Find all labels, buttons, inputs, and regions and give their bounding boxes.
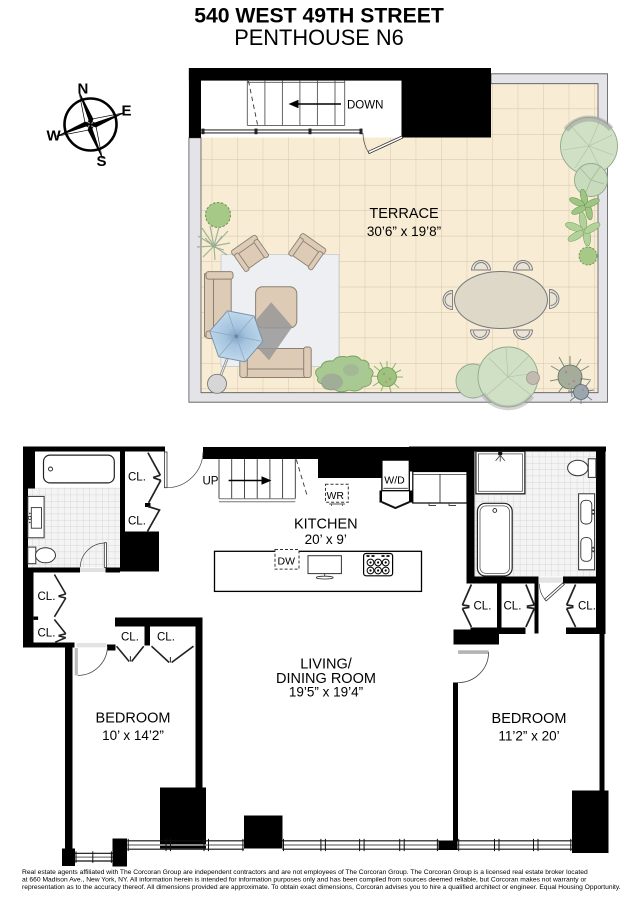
svg-text:CL.: CL. [128,516,146,528]
svg-text:BEDROOM: BEDROOM [96,711,171,727]
svg-text:representation as to the accur: representation as to the accuracy thereo… [22,884,621,891]
svg-text:S: S [97,153,107,170]
svg-text:N: N [78,81,89,98]
svg-text:W/D: W/D [384,475,405,487]
svg-text:at 660 Madison Ave., New York,: at 660 Madison Ave., New York, NY. All i… [22,877,587,884]
svg-text:CL.: CL. [128,472,146,484]
svg-text:CL.: CL. [121,632,139,644]
svg-text:19’5” x 19’4”: 19’5” x 19’4” [289,684,363,699]
svg-text:KITCHEN: KITCHEN [294,517,358,533]
svg-text:CL.: CL. [504,601,522,613]
svg-text:10’ x 14’2”: 10’ x 14’2” [102,728,164,743]
svg-text:PENTHOUSE N6: PENTHOUSE N6 [234,25,404,50]
svg-text:WR: WR [327,490,345,502]
svg-text:30’6” x 19’8”: 30’6” x 19’8” [367,224,441,239]
svg-text:DOWN: DOWN [347,100,383,112]
svg-text:11’2” x 20’: 11’2” x 20’ [498,729,559,744]
svg-text:TERRACE: TERRACE [369,206,439,222]
svg-text:CL.: CL. [157,632,175,644]
svg-text:Real estate agents affiliated: Real estate agents affiliated with The C… [22,869,588,876]
svg-text:BEDROOM: BEDROOM [492,711,567,727]
svg-text:CL.: CL. [38,591,56,603]
svg-text:CL.: CL. [474,601,492,613]
svg-text:CL.: CL. [38,628,56,640]
svg-text:CL.: CL. [578,601,596,613]
svg-text:E: E [122,103,132,120]
svg-text:DW: DW [278,556,296,568]
svg-text:20’ x 9’: 20’ x 9’ [305,532,347,547]
svg-text:UP: UP [203,476,219,488]
svg-text:W: W [47,128,62,145]
